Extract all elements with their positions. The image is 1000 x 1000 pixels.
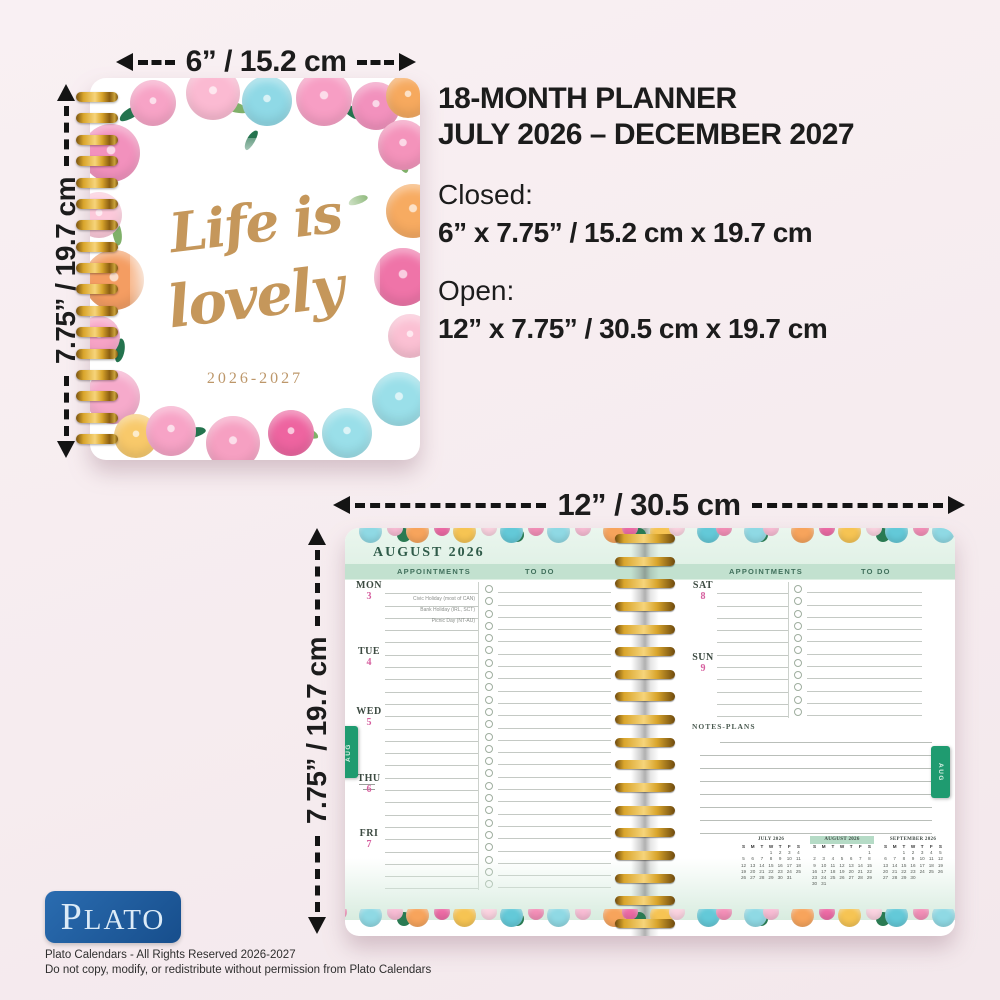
todo-row bbox=[483, 730, 611, 742]
flower-icon bbox=[359, 909, 382, 927]
appointment-line bbox=[385, 668, 478, 680]
day-label: THU6 bbox=[353, 773, 385, 795]
mini-calendar-week-row: 3031 bbox=[810, 881, 874, 887]
todo-line bbox=[498, 592, 611, 593]
spiral-coil bbox=[615, 579, 675, 588]
right-appointments-column bbox=[717, 582, 788, 717]
appointment-line bbox=[385, 816, 478, 828]
notes-line bbox=[700, 821, 932, 834]
notes-lines bbox=[700, 730, 932, 834]
todo-line bbox=[498, 851, 611, 852]
spiral-coil bbox=[76, 135, 118, 145]
todo-checkbox bbox=[485, 696, 493, 704]
appointment-line bbox=[385, 643, 478, 655]
product-title-line1: 18-MONTH PLANNER bbox=[438, 81, 983, 117]
appointment-line bbox=[385, 840, 478, 852]
day-number: 9 bbox=[687, 663, 719, 674]
open-height-dimension-arrow: 7.75” / 19.7 cm bbox=[301, 528, 333, 934]
day-label: TUE4 bbox=[353, 646, 385, 668]
mini-calendar-title: JULY 2026 bbox=[739, 836, 803, 844]
spiral-coil bbox=[76, 306, 118, 316]
copyright-line2: Do not copy, modify, or redistribute wit… bbox=[45, 963, 431, 978]
spiral-coil bbox=[615, 647, 675, 656]
holiday-note: Civic Holiday (most of CAN) bbox=[385, 596, 475, 602]
spiral-coil bbox=[615, 896, 675, 905]
notes-line bbox=[700, 795, 932, 808]
todo-checkbox bbox=[794, 585, 802, 593]
mini-calendar-day-cell: 30 bbox=[908, 875, 917, 881]
arrow-down-icon bbox=[308, 917, 326, 934]
todo-line bbox=[807, 641, 922, 642]
spiral-binding bbox=[615, 534, 675, 928]
todo-checkbox bbox=[485, 671, 493, 679]
spiral-coil bbox=[615, 851, 675, 860]
appointment-line bbox=[717, 643, 788, 655]
flower-icon bbox=[481, 528, 497, 536]
todo-line bbox=[807, 617, 922, 618]
appointment-line bbox=[385, 742, 478, 754]
open-label: Open: bbox=[438, 275, 983, 307]
day-label: SAT8 bbox=[687, 580, 719, 602]
appointment-line bbox=[717, 705, 788, 717]
spiral-coil bbox=[615, 783, 675, 792]
spiral-coil bbox=[615, 874, 675, 883]
day-number: 5 bbox=[353, 717, 385, 728]
planner-cover: Life islovely2026-2027 bbox=[90, 78, 420, 460]
left-appointments-header: APPOINTMENTS bbox=[397, 567, 471, 576]
appointment-line bbox=[717, 594, 788, 606]
mini-calendar-day-cell bbox=[837, 881, 846, 887]
day-label: MON3 bbox=[353, 580, 385, 602]
todo-checkbox bbox=[485, 646, 493, 654]
todo-checkbox bbox=[794, 622, 802, 630]
appointment-line bbox=[385, 656, 478, 668]
arrow-left-icon bbox=[116, 53, 133, 71]
day-name: SUN bbox=[687, 652, 719, 663]
spiral-coil bbox=[76, 156, 118, 166]
closed-label: Closed: bbox=[438, 179, 983, 211]
appointment-line bbox=[385, 828, 478, 840]
todo-checkbox bbox=[485, 597, 493, 605]
spiral-coil bbox=[615, 557, 675, 566]
todo-row bbox=[792, 705, 922, 717]
day-label: SUN9 bbox=[687, 652, 719, 674]
todo-row bbox=[792, 631, 922, 643]
mini-calendar-day-cell bbox=[856, 881, 865, 887]
flower-icon bbox=[345, 909, 347, 920]
day-label: WED5 bbox=[353, 706, 385, 728]
flower-icon bbox=[481, 909, 497, 920]
appointment-line bbox=[385, 803, 478, 815]
left-todo-header: TO DO bbox=[525, 567, 555, 576]
open-width-label: 12” / 30.5 cm bbox=[551, 487, 746, 523]
flower-icon bbox=[434, 909, 450, 920]
todo-checkbox bbox=[794, 634, 802, 642]
spiral-coil bbox=[76, 413, 118, 423]
mini-calendar-day-cell bbox=[865, 881, 874, 887]
dashed-line bbox=[752, 503, 943, 508]
holiday-notes: Civic Holiday (most of CAN)Bank Holiday … bbox=[385, 596, 475, 629]
mini-calendar-day-cell bbox=[847, 881, 856, 887]
mini-calendar: SEPTEMBER 2026SMTWTFS1234567891011121314… bbox=[881, 836, 945, 887]
cover-years: 2026-2027 bbox=[90, 370, 420, 388]
todo-line bbox=[498, 666, 611, 667]
flower-icon bbox=[528, 528, 544, 536]
todo-line bbox=[807, 654, 922, 655]
appointment-line bbox=[717, 619, 788, 631]
todo-checkbox bbox=[794, 696, 802, 704]
todo-line bbox=[807, 592, 922, 593]
mini-calendar-day-cell: 29 bbox=[766, 875, 775, 881]
notes-line bbox=[700, 756, 932, 769]
planner-open-spread: AUGUST 2026 APPOINTMENTS TO DO APPOINTME… bbox=[345, 528, 955, 936]
column-divider bbox=[788, 582, 789, 718]
appointment-line bbox=[385, 730, 478, 742]
copyright-line1: Plato Calendars - All Rights Reserved 20… bbox=[45, 948, 431, 963]
todo-checkbox bbox=[485, 659, 493, 667]
todo-line bbox=[807, 629, 922, 630]
left-todo-column bbox=[483, 582, 611, 889]
flower-icon bbox=[763, 909, 779, 920]
appointment-line bbox=[717, 582, 788, 594]
day-number: 7 bbox=[353, 839, 385, 850]
right-todo-header: TO DO bbox=[861, 567, 891, 576]
mini-calendar: AUGUST 2026SMTWTFS1234567891011121314151… bbox=[810, 836, 874, 887]
todo-checkbox bbox=[485, 683, 493, 691]
closed-dimensions: 6” x 7.75” / 15.2 cm x 19.7 cm bbox=[438, 217, 983, 249]
spiral-binding bbox=[76, 92, 118, 444]
day-name: TUE bbox=[353, 646, 385, 657]
flower-icon bbox=[819, 909, 835, 920]
todo-checkbox bbox=[485, 843, 493, 851]
todo-line bbox=[807, 678, 922, 679]
todo-checkbox bbox=[485, 634, 493, 642]
plato-logo-text: PLATO bbox=[61, 898, 166, 936]
mini-calendar: JULY 2026SMTWTFS123456789101112131415161… bbox=[739, 836, 803, 887]
dashed-line bbox=[64, 106, 69, 166]
day-name: SAT bbox=[687, 580, 719, 591]
appointment-line bbox=[717, 693, 788, 705]
mini-calendar-day-cell: 31 bbox=[785, 875, 794, 881]
todo-checkbox bbox=[485, 622, 493, 630]
mini-calendar-day-cell: 29 bbox=[899, 875, 908, 881]
flower-icon bbox=[206, 416, 260, 460]
todo-line bbox=[498, 605, 611, 606]
flower-icon bbox=[547, 528, 570, 543]
flower-icon bbox=[378, 120, 420, 170]
month-title: AUGUST 2026 bbox=[373, 545, 485, 561]
closed-width-dimension-arrow: 6” / 15.2 cm bbox=[116, 47, 416, 77]
flower-icon bbox=[130, 80, 176, 126]
holiday-note: Picnic Day (NT-AU) bbox=[385, 618, 475, 624]
arrow-right-icon bbox=[399, 53, 416, 71]
day-number: 8 bbox=[687, 591, 719, 602]
mini-calendar-day-cell: 30 bbox=[776, 875, 785, 881]
todo-row bbox=[483, 803, 611, 815]
mini-calendar-day-cell bbox=[794, 875, 803, 881]
todo-row bbox=[792, 693, 922, 705]
flower-icon bbox=[838, 528, 861, 543]
mini-calendar-day-cell bbox=[936, 875, 945, 881]
todo-checkbox bbox=[485, 794, 493, 802]
spiral-coil bbox=[615, 806, 675, 815]
arrow-right-icon bbox=[948, 496, 965, 514]
mini-calendar-day-cell bbox=[927, 875, 936, 881]
day-label: FRI7 bbox=[353, 828, 385, 850]
todo-row bbox=[483, 668, 611, 680]
todo-row bbox=[792, 619, 922, 631]
spiral-coil bbox=[615, 692, 675, 701]
todo-line bbox=[498, 703, 611, 704]
mini-calendar-title: AUGUST 2026 bbox=[810, 836, 874, 844]
appointment-line bbox=[385, 582, 478, 594]
spiral-coil bbox=[76, 178, 118, 188]
plato-logo: PLATO bbox=[45, 891, 181, 943]
todo-row bbox=[483, 717, 611, 729]
column-divider bbox=[478, 582, 479, 890]
todo-row bbox=[792, 594, 922, 606]
todo-row bbox=[792, 680, 922, 692]
todo-line bbox=[498, 764, 611, 765]
dashed-line bbox=[315, 550, 320, 626]
todo-checkbox bbox=[485, 708, 493, 716]
arrow-up-icon bbox=[57, 84, 75, 101]
flower-icon bbox=[322, 408, 372, 458]
todo-row bbox=[483, 840, 611, 852]
spiral-coil bbox=[76, 263, 118, 273]
todo-checkbox bbox=[485, 831, 493, 839]
appointment-line bbox=[717, 607, 788, 619]
flower-icon bbox=[819, 528, 835, 536]
todo-row bbox=[483, 828, 611, 840]
flower-icon bbox=[885, 909, 908, 927]
flower-icon bbox=[575, 909, 591, 920]
todo-row bbox=[483, 619, 611, 631]
flower-icon bbox=[885, 528, 908, 543]
todo-line bbox=[498, 789, 611, 790]
flower-icon bbox=[913, 909, 929, 920]
spiral-coil bbox=[615, 602, 675, 611]
spiral-coil bbox=[76, 434, 118, 444]
day-name: FRI bbox=[353, 828, 385, 839]
dashed-line bbox=[357, 60, 394, 65]
mini-calendar-day-cell: 27 bbox=[748, 875, 757, 881]
todo-line bbox=[498, 728, 611, 729]
arrow-down-icon bbox=[57, 441, 75, 458]
spiral-coil bbox=[76, 113, 118, 123]
spiral-coil bbox=[615, 715, 675, 724]
appointment-line bbox=[717, 680, 788, 692]
flower-icon bbox=[406, 528, 429, 543]
todo-line bbox=[498, 641, 611, 642]
todo-line bbox=[498, 617, 611, 618]
notes-line bbox=[700, 808, 932, 821]
spiral-coil bbox=[76, 220, 118, 230]
todo-row bbox=[483, 766, 611, 778]
flower-icon bbox=[186, 78, 240, 120]
right-appointments-header: APPOINTMENTS bbox=[729, 567, 803, 576]
spiral-coil bbox=[615, 670, 675, 679]
todo-line bbox=[498, 814, 611, 815]
open-height-label: 7.75” / 19.7 cm bbox=[301, 631, 333, 830]
todo-line bbox=[498, 752, 611, 753]
spiral-coil bbox=[615, 738, 675, 747]
todo-checkbox bbox=[485, 782, 493, 790]
todo-line bbox=[498, 777, 611, 778]
todo-row bbox=[483, 816, 611, 828]
todo-checkbox bbox=[794, 683, 802, 691]
appointment-line bbox=[385, 693, 478, 705]
todo-row bbox=[483, 643, 611, 655]
spiral-coil bbox=[615, 919, 675, 928]
todo-checkbox bbox=[485, 610, 493, 618]
todo-row bbox=[792, 656, 922, 668]
month-tab-left: AUG bbox=[345, 726, 358, 778]
spiral-coil bbox=[76, 92, 118, 102]
todo-checkbox bbox=[794, 671, 802, 679]
todo-line bbox=[807, 703, 922, 704]
flower-icon bbox=[268, 410, 314, 456]
todo-line bbox=[807, 715, 922, 716]
todo-checkbox bbox=[794, 610, 802, 618]
spiral-coil bbox=[76, 370, 118, 380]
spiral-coil bbox=[76, 391, 118, 401]
flower-icon bbox=[146, 406, 196, 456]
month-tab-label: AUG bbox=[937, 763, 944, 782]
notes-line bbox=[720, 730, 932, 743]
mini-calendar-day-cell bbox=[828, 881, 837, 887]
todo-checkbox bbox=[485, 769, 493, 777]
arrow-up-icon bbox=[308, 528, 326, 545]
todo-line bbox=[498, 654, 611, 655]
todo-checkbox bbox=[485, 745, 493, 753]
todo-checkbox bbox=[485, 733, 493, 741]
flower-icon bbox=[528, 909, 544, 920]
appointment-line bbox=[385, 766, 478, 778]
todo-checkbox bbox=[485, 819, 493, 827]
flower-icon bbox=[406, 909, 429, 927]
month-tab-right: AUG bbox=[931, 746, 950, 798]
flower-icon bbox=[434, 528, 450, 536]
copyright: Plato Calendars - All Rights Reserved 20… bbox=[45, 948, 431, 978]
notes-line bbox=[700, 743, 932, 756]
appointment-line bbox=[385, 717, 478, 729]
todo-line bbox=[807, 691, 922, 692]
mini-calendar-day-cell: 26 bbox=[739, 875, 748, 881]
notes-line bbox=[700, 782, 932, 795]
todo-line bbox=[498, 629, 611, 630]
spiral-coil bbox=[76, 349, 118, 359]
todo-row bbox=[792, 668, 922, 680]
todo-row bbox=[483, 631, 611, 643]
appointment-line bbox=[717, 656, 788, 668]
todo-checkbox bbox=[485, 757, 493, 765]
flower-icon bbox=[838, 909, 861, 927]
product-image: 6” / 15.2 cm 7.75” / 19.7 cm Life islove… bbox=[0, 0, 1000, 1000]
day-name: MON bbox=[353, 580, 385, 591]
todo-row bbox=[792, 607, 922, 619]
todo-checkbox bbox=[794, 708, 802, 716]
flower-icon bbox=[359, 528, 382, 543]
todo-line bbox=[498, 826, 611, 827]
spiral-coil bbox=[76, 199, 118, 209]
todo-checkbox bbox=[485, 806, 493, 814]
mini-calendar-day-cell: 28 bbox=[890, 875, 899, 881]
day-number: 4 bbox=[353, 657, 385, 668]
todo-checkbox bbox=[485, 585, 493, 593]
todo-row bbox=[483, 754, 611, 766]
flower-icon bbox=[547, 909, 570, 927]
appointment-line bbox=[717, 631, 788, 643]
flower-icon bbox=[453, 528, 476, 543]
todo-row bbox=[483, 582, 611, 594]
flower-icon bbox=[575, 528, 591, 536]
flower-icon bbox=[791, 909, 814, 927]
flower-icon bbox=[913, 528, 929, 536]
mini-calendar-day-cell: 30 bbox=[810, 881, 819, 887]
todo-row bbox=[483, 742, 611, 754]
product-info: 18-MONTH PLANNER JULY 2026 – DECEMBER 20… bbox=[438, 81, 983, 345]
todo-checkbox bbox=[485, 720, 493, 728]
appointment-line bbox=[385, 754, 478, 766]
todo-line bbox=[498, 740, 611, 741]
mini-calendar-day-cell bbox=[918, 875, 927, 881]
dashed-line bbox=[355, 503, 546, 508]
todo-line bbox=[498, 715, 611, 716]
spiral-coil bbox=[615, 534, 675, 543]
mini-calendar-day-cell: 27 bbox=[881, 875, 890, 881]
dashed-line bbox=[64, 376, 69, 436]
closed-width-label: 6” / 15.2 cm bbox=[180, 45, 353, 79]
spiral-coil bbox=[76, 284, 118, 294]
dashed-line bbox=[138, 60, 175, 65]
todo-line bbox=[807, 605, 922, 606]
todo-line bbox=[498, 691, 611, 692]
todo-row bbox=[483, 693, 611, 705]
flower-icon bbox=[345, 528, 347, 536]
todo-line bbox=[807, 666, 922, 667]
mini-calendar-week-row: 27282930 bbox=[881, 875, 945, 881]
month-tab-label: AUG bbox=[345, 743, 352, 762]
todo-checkbox bbox=[794, 597, 802, 605]
arrow-left-icon bbox=[333, 496, 350, 514]
todo-row bbox=[483, 594, 611, 606]
todo-line bbox=[498, 678, 611, 679]
todo-line bbox=[498, 801, 611, 802]
day-number: 3 bbox=[353, 591, 385, 602]
todo-row bbox=[483, 791, 611, 803]
todo-line bbox=[498, 838, 611, 839]
appointment-line bbox=[385, 631, 478, 643]
open-width-dimension-arrow: 12” / 30.5 cm bbox=[333, 489, 965, 521]
mini-calendar-title: SEPTEMBER 2026 bbox=[881, 836, 945, 844]
appointment-line bbox=[717, 668, 788, 680]
day-name: WED bbox=[353, 706, 385, 717]
todo-row bbox=[792, 643, 922, 655]
spiral-coil bbox=[615, 760, 675, 769]
todo-checkbox bbox=[794, 659, 802, 667]
mini-calendar-day-cell: 31 bbox=[819, 881, 828, 887]
todo-row bbox=[483, 607, 611, 619]
flower-icon bbox=[296, 78, 352, 126]
flower-icon bbox=[932, 528, 955, 543]
flower-icon bbox=[453, 909, 476, 927]
spiral-coil bbox=[615, 625, 675, 634]
todo-row bbox=[483, 656, 611, 668]
flower-icon bbox=[388, 314, 420, 358]
notes-line bbox=[700, 769, 932, 782]
todo-row bbox=[483, 779, 611, 791]
